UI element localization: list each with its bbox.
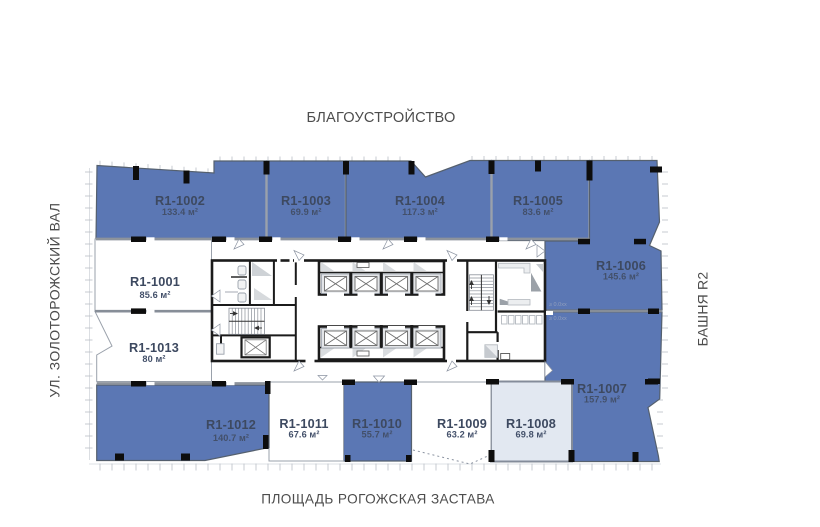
- svg-text:≥ 0.0хх: ≥ 0.0хх: [549, 316, 567, 322]
- svg-text:69.9 м²: 69.9 м²: [291, 207, 322, 217]
- svg-text:80 м²: 80 м²: [142, 354, 165, 364]
- svg-text:55.7 м²: 55.7 м²: [362, 430, 393, 440]
- svg-text:R1-1002: R1-1002: [155, 194, 205, 208]
- svg-text:133.4 м²: 133.4 м²: [162, 207, 198, 217]
- svg-text:ПЛОЩАДЬ РОГОЖСКАЯ ЗАСТАВА: ПЛОЩАДЬ РОГОЖСКАЯ ЗАСТАВА: [261, 492, 495, 507]
- svg-text:R1-1005: R1-1005: [513, 194, 563, 208]
- svg-text:140.7 м²: 140.7 м²: [213, 433, 249, 443]
- svg-text:≥ 0.0хх: ≥ 0.0хх: [549, 302, 567, 308]
- svg-text:R1-1012: R1-1012: [206, 418, 256, 432]
- svg-text:R1-1004: R1-1004: [395, 194, 445, 208]
- svg-text:117.3 м²: 117.3 м²: [402, 207, 438, 217]
- svg-text:85.6 м²: 85.6 м²: [140, 290, 171, 300]
- svg-text:69.8 м²: 69.8 м²: [516, 430, 547, 440]
- svg-text:157.9 м²: 157.9 м²: [584, 395, 620, 405]
- svg-text:83.6 м²: 83.6 м²: [523, 207, 554, 217]
- svg-text:R1-1001: R1-1001: [130, 275, 180, 289]
- svg-text:63.2 м²: 63.2 м²: [447, 430, 478, 440]
- svg-text:67.6 м²: 67.6 м²: [289, 430, 320, 440]
- svg-text:R1-1013: R1-1013: [129, 341, 179, 355]
- svg-text:БЛАГОУСТРОЙСТВО: БЛАГОУСТРОЙСТВО: [306, 108, 455, 126]
- svg-text:БАШНЯ R2: БАШНЯ R2: [695, 272, 711, 347]
- svg-text:R1-1003: R1-1003: [281, 194, 331, 208]
- svg-text:145.6 м²: 145.6 м²: [603, 272, 639, 282]
- svg-text:УЛ. ЗОЛОТОРОЖСКИЙ ВАЛ: УЛ. ЗОЛОТОРОЖСКИЙ ВАЛ: [46, 202, 63, 397]
